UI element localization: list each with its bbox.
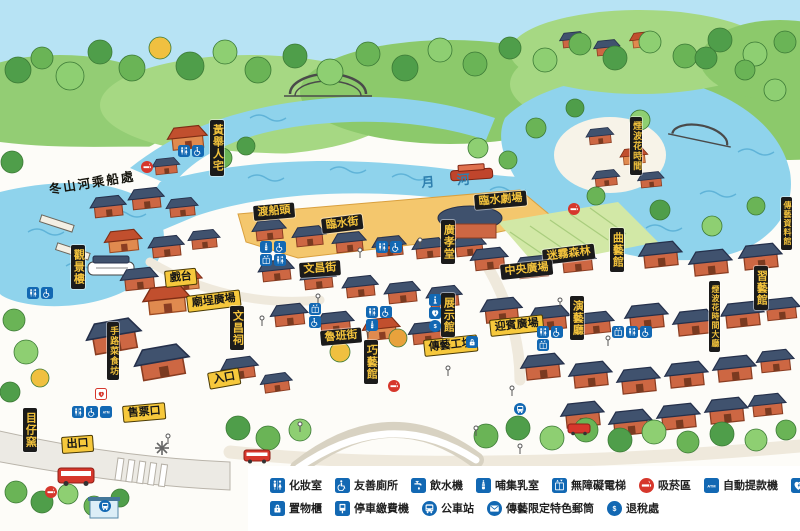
- legend-item-elevator: 無障礙電梯: [552, 477, 626, 493]
- atm-icon: [704, 478, 719, 493]
- nursing-icon: [476, 478, 491, 493]
- map-label-scenic-tower: 觀景樓: [71, 245, 85, 289]
- smoking-icon: [45, 486, 57, 498]
- legend-item-tax: 退稅處: [607, 500, 659, 516]
- accessible-icon: [390, 241, 402, 253]
- restroom-icon: [274, 254, 286, 266]
- legend-label: 哺集乳室: [495, 477, 539, 493]
- map-label-shoulucai-restaurant: 手路菜食坊: [107, 322, 119, 380]
- map-legend: 化妝室友善廁所飲水機哺集乳室無障礙電梯吸菸區自動提款機自動電擊器AED遊客資訊站…: [270, 477, 800, 516]
- map-illustration: [0, 0, 800, 531]
- locker-icon: [270, 501, 285, 516]
- map-label-quyi-hall: 曲藝館: [610, 228, 624, 272]
- map-marker-cluster: [376, 241, 403, 253]
- map-label-exhibition-hall: 展示館: [441, 293, 455, 337]
- map-marker-cluster: [309, 303, 322, 328]
- map-label-muzai-kiln: 目仔窯: [23, 408, 37, 452]
- traditional-arts-center-illustrated-map: 冬山河乘船處月 河渡船頭臨水街文昌街臨水劇場迷霧森林中央廣場魯班街戲台廟埕廣場傳…: [0, 0, 800, 531]
- accessible-icon: [192, 145, 204, 157]
- info-icon: [429, 294, 441, 306]
- legend-item-nursing: 哺集乳室: [476, 477, 539, 493]
- legend-item-parking: 停車繳費機: [335, 500, 409, 516]
- map-marker-cluster: [141, 161, 154, 173]
- aed-icon: [791, 478, 800, 493]
- accessible-icon: [309, 316, 321, 328]
- water-icon: [411, 478, 426, 493]
- nursing-icon: [366, 319, 378, 331]
- map-label-huang-juren-residence: 黃舉人宅: [210, 120, 224, 176]
- legend-item-water: 飲水機: [411, 477, 463, 493]
- locker-icon: [466, 336, 478, 348]
- map-label-exit: 出口: [61, 435, 94, 455]
- legend-item-smoking: 吸菸區: [639, 477, 691, 493]
- legend-row: 置物櫃停車繳費機公車站傳藝限定特色郵筒退稅處: [270, 500, 800, 516]
- restroom-icon: [626, 326, 638, 338]
- accessible-icon: [380, 306, 392, 318]
- aed-icon: [95, 388, 107, 400]
- legend-label: 飲水機: [430, 477, 463, 493]
- map-label-chuanyi-archives: 傳藝資料館: [781, 197, 792, 250]
- restroom-icon: [376, 241, 388, 253]
- elevator-icon: [552, 478, 567, 493]
- map-marker-cluster: [568, 203, 581, 215]
- restroom-icon: [72, 406, 84, 418]
- map-marker-cluster: [429, 294, 442, 332]
- smoking-icon: [388, 380, 400, 392]
- atm-icon: [100, 406, 112, 418]
- map-marker-cluster: [388, 380, 401, 392]
- map-label-xiyi-hall: 習藝館: [754, 266, 768, 310]
- mail-icon: [487, 501, 502, 516]
- restroom-icon: [366, 306, 378, 318]
- restroom-icon: [27, 287, 39, 299]
- legend-label: 停車繳費機: [354, 500, 409, 516]
- legend-item-locker: 置物櫃: [270, 500, 322, 516]
- map-label-qiaoyi-hall: 巧藝館: [364, 340, 378, 384]
- legend-label: 化妝室: [289, 477, 322, 493]
- map-marker-cluster: [260, 241, 287, 266]
- map-label-wenchang-temple: 文昌祠: [230, 306, 244, 350]
- legend-label: 傳藝限定特色郵筒: [506, 500, 594, 516]
- accessible-icon: [640, 326, 652, 338]
- legend-item-bus: 公車站: [422, 500, 474, 516]
- elevator-icon: [537, 339, 549, 351]
- legend-label: 置物櫃: [289, 500, 322, 516]
- legend-item-accessible: 友善廁所: [335, 477, 398, 493]
- map-marker-cluster: [514, 403, 527, 415]
- bus-icon: [514, 403, 526, 415]
- map-marker-cluster: [466, 336, 479, 348]
- nursing-icon: [260, 241, 272, 253]
- legend-label: 公車站: [441, 500, 474, 516]
- map-label-wenchang-street: 文昌街: [299, 260, 341, 278]
- legend-label: 退稅處: [626, 500, 659, 516]
- legend-item-restroom: 化妝室: [270, 477, 322, 493]
- legend-item-mail: 傳藝限定特色郵筒: [487, 500, 594, 516]
- map-marker-cluster: [95, 388, 108, 400]
- smoking-icon: [568, 203, 580, 215]
- star-mark: [155, 441, 169, 455]
- legend-label: 吸菸區: [658, 477, 691, 493]
- map-marker-cluster: [366, 306, 393, 331]
- legend-label: 友善廁所: [354, 477, 398, 493]
- restroom-icon: [270, 478, 285, 493]
- legend-item-aed: 自動電擊器AED: [791, 477, 800, 493]
- map-marker-cluster: [612, 326, 653, 338]
- map-marker-cluster: [72, 406, 113, 418]
- legend-label: 無障礙電梯: [571, 477, 626, 493]
- map-label-guangxiao-hall: 廣孝堂: [441, 220, 455, 264]
- map-marker-cluster: [178, 145, 205, 157]
- smoking-icon: [141, 161, 153, 173]
- aed-icon: [429, 307, 441, 319]
- accessible-icon: [274, 241, 286, 253]
- legend-row: 化妝室友善廁所飲水機哺集乳室無障礙電梯吸菸區自動提款機自動電擊器AED遊客資訊站: [270, 477, 800, 493]
- map-marker-cluster: [99, 500, 112, 512]
- tax-icon: [607, 501, 622, 516]
- map-marker-cluster: [537, 326, 564, 351]
- bus-icon: [422, 501, 437, 516]
- map-label-yanbo-huashijian: 煙波花時間: [630, 117, 642, 175]
- restroom-icon: [178, 145, 190, 157]
- map-label-performance-hall: 演藝廳: [570, 296, 584, 340]
- map-marker-cluster: [45, 486, 58, 498]
- tax-icon: [429, 320, 441, 332]
- elevator-icon: [612, 326, 624, 338]
- map-label-yanbo-lobby: 煙波花時間大廳: [709, 281, 720, 352]
- parking-icon: [335, 501, 350, 516]
- accessible-icon: [86, 406, 98, 418]
- legend-label: 自動提款機: [723, 477, 778, 493]
- bus-icon: [99, 500, 111, 512]
- map-marker-cluster: [27, 287, 54, 299]
- restroom-icon: [537, 326, 549, 338]
- legend-item-atm: 自動提款機: [704, 477, 778, 493]
- elevator-icon: [309, 303, 321, 315]
- elevator-icon: [260, 254, 272, 266]
- accessible-icon: [41, 287, 53, 299]
- bus-vehicle: [58, 468, 94, 486]
- smoking-icon: [639, 478, 654, 493]
- accessible-icon: [335, 478, 350, 493]
- minibus-vehicle: [244, 450, 270, 464]
- accessible-icon: [551, 326, 563, 338]
